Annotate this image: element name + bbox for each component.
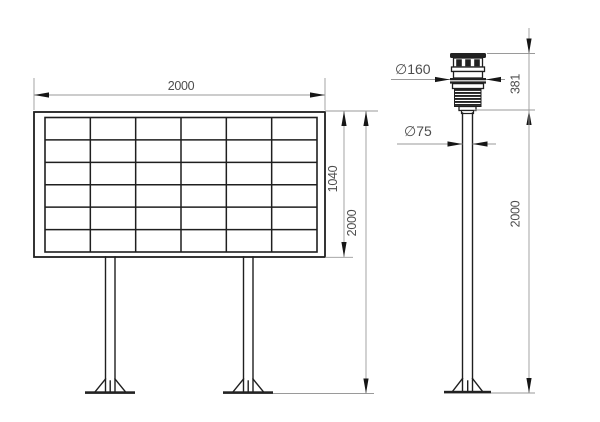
sensor-louver bbox=[455, 104, 481, 106]
dim-pole-diameter-label: ∅75 bbox=[404, 123, 432, 139]
sensor-slot bbox=[456, 59, 462, 66]
sensor-slot bbox=[465, 59, 471, 66]
sensor-louver bbox=[455, 89, 481, 91]
dim-arrow-down bbox=[526, 378, 531, 393]
dim-arrow-right bbox=[448, 141, 463, 146]
dim-arrow-down bbox=[341, 242, 346, 257]
gusset bbox=[234, 379, 244, 391]
dim-arrow-down bbox=[363, 379, 368, 394]
gusset bbox=[96, 379, 106, 391]
sensor-louver bbox=[455, 98, 481, 100]
left-leg bbox=[85, 257, 135, 394]
dim-arrow-left bbox=[486, 77, 501, 82]
gusset bbox=[473, 379, 483, 391]
dim-panel-height-label: 1040 bbox=[326, 165, 340, 192]
dim-arrow-right bbox=[435, 77, 450, 82]
dim-arrow-left bbox=[34, 92, 49, 97]
side-view bbox=[444, 53, 491, 393]
dim-total-height-label: 2000 bbox=[345, 209, 359, 236]
sensor-slot bbox=[474, 59, 480, 66]
dim-pole-height-label: 2000 bbox=[509, 200, 523, 227]
mounting-pole bbox=[444, 113, 491, 393]
dim-sensor-diameter-label: ∅160 bbox=[395, 61, 431, 77]
right-leg bbox=[223, 257, 273, 394]
sensor-cap bbox=[450, 53, 486, 58]
dim-arrow-up bbox=[363, 111, 368, 126]
sensor-louver-shield bbox=[455, 89, 482, 107]
dim-arrow-up bbox=[341, 111, 346, 126]
sensor-collar bbox=[453, 84, 484, 89]
technical-drawing: 2000 1040 2000 bbox=[0, 0, 600, 422]
dim-arrow-down bbox=[526, 39, 531, 54]
sensor-body bbox=[454, 72, 483, 79]
sensor-head bbox=[450, 53, 486, 114]
sensor-ring bbox=[452, 67, 485, 72]
gusset bbox=[115, 379, 125, 391]
dim-arrow-left bbox=[473, 141, 488, 146]
dim-arrow-right bbox=[310, 92, 325, 97]
gusset bbox=[453, 379, 463, 391]
sensor-louver bbox=[455, 101, 481, 103]
sensor-neck-lower bbox=[462, 111, 474, 114]
sensor-louver bbox=[455, 92, 481, 94]
front-view bbox=[34, 112, 325, 394]
dim-width-label: 2000 bbox=[168, 79, 195, 93]
gusset bbox=[253, 379, 263, 391]
sensor-louver bbox=[455, 95, 481, 97]
dim-sensor-height-label: 381 bbox=[509, 74, 523, 94]
